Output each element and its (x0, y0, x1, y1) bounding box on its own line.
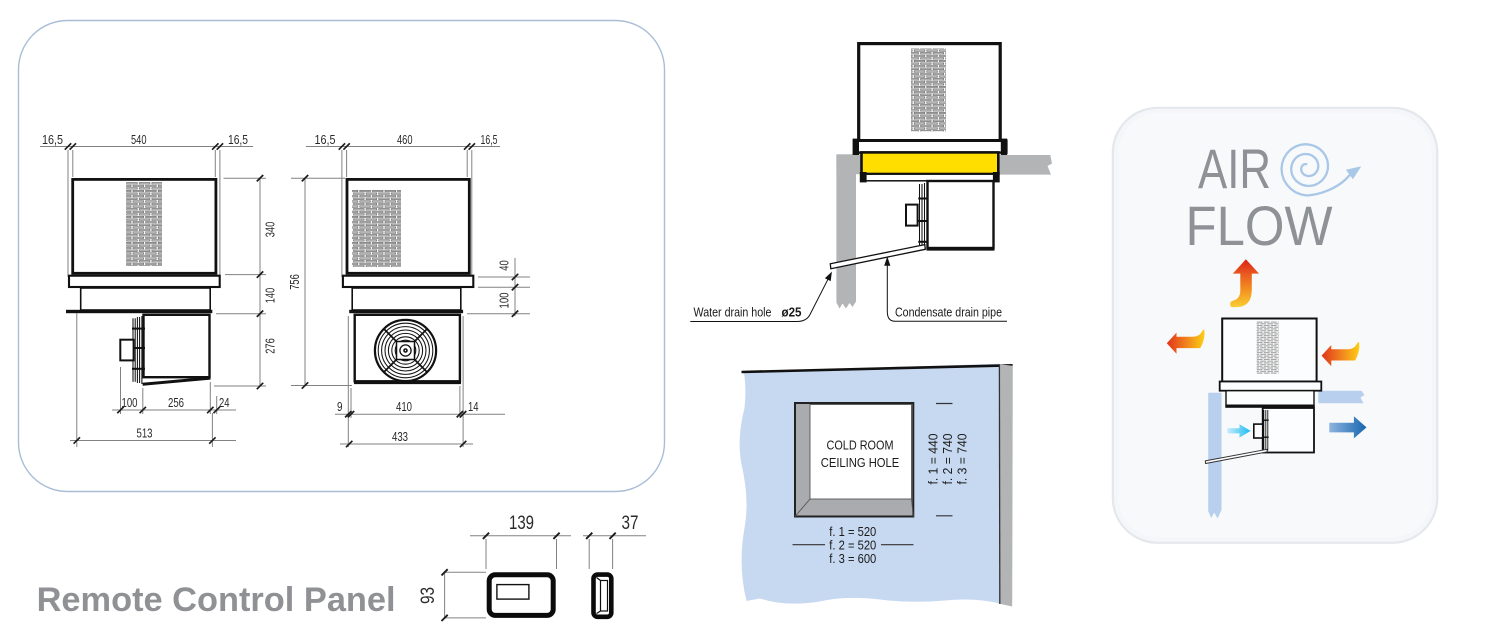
svg-text:24: 24 (219, 396, 230, 410)
svg-text:756: 756 (288, 274, 302, 290)
svg-text:16,5: 16,5 (228, 133, 248, 147)
svg-text:Remote Control Panel: Remote Control Panel (37, 581, 396, 619)
svg-text:Water drain hole: Water drain hole (694, 306, 772, 320)
svg-text:40: 40 (498, 260, 512, 271)
svg-text:CEILING HOLE: CEILING HOLE (821, 456, 900, 470)
svg-text:16,5: 16,5 (42, 133, 63, 147)
svg-text:9: 9 (337, 400, 343, 414)
svg-text:Condensate drain pipe: Condensate drain pipe (895, 306, 1002, 320)
svg-text:16,5: 16,5 (315, 133, 336, 147)
svg-text:FLOW: FLOW (1186, 194, 1333, 257)
svg-text:f. 2 = 520: f. 2 = 520 (829, 539, 876, 553)
svg-text:433: 433 (392, 430, 408, 444)
svg-text:f. 1 = 520: f. 1 = 520 (829, 525, 876, 539)
svg-text:AIR: AIR (1198, 137, 1271, 200)
svg-text:f. 2 = 740: f. 2 = 740 (941, 433, 955, 484)
svg-text:540: 540 (131, 133, 147, 147)
svg-text:93: 93 (418, 587, 439, 604)
svg-text:100: 100 (498, 292, 512, 308)
svg-text:ø25: ø25 (782, 306, 802, 320)
svg-text:276: 276 (264, 338, 278, 354)
svg-text:16,5: 16,5 (481, 133, 498, 147)
svg-text:256: 256 (168, 396, 184, 410)
svg-text:410: 410 (396, 400, 412, 414)
svg-text:f. 1 = 440: f. 1 = 440 (927, 433, 941, 484)
svg-text:37: 37 (622, 513, 639, 534)
svg-text:460: 460 (397, 133, 413, 147)
svg-text:14: 14 (468, 400, 479, 414)
svg-text:COLD ROOM: COLD ROOM (827, 439, 894, 453)
svg-text:f. 3 = 740: f. 3 = 740 (956, 433, 970, 484)
svg-text:f. 3 = 600: f. 3 = 600 (829, 552, 876, 566)
svg-text:340: 340 (264, 222, 278, 238)
svg-text:100: 100 (122, 396, 138, 410)
svg-text:140: 140 (264, 288, 278, 304)
svg-text:513: 513 (137, 427, 153, 441)
svg-text:139: 139 (509, 513, 534, 534)
